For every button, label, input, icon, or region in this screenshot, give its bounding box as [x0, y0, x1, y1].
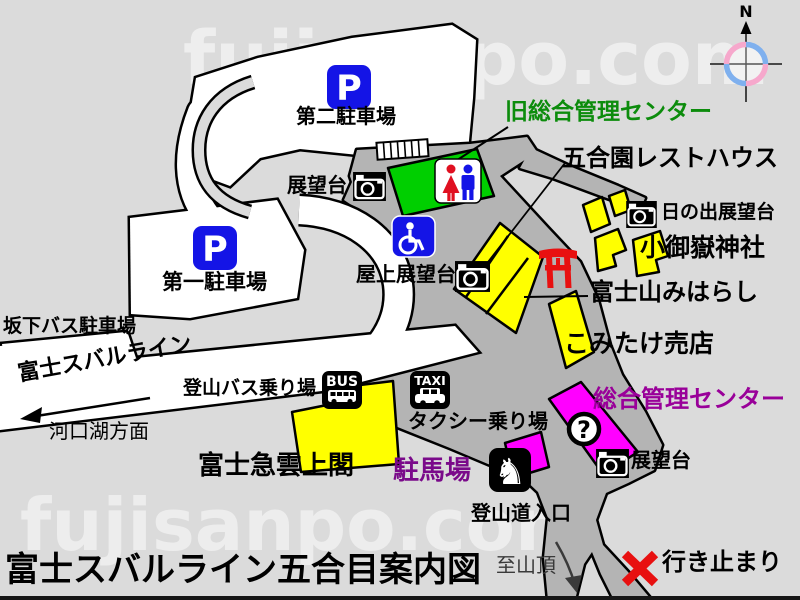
- label-taxi-stand: タクシー乗り場: [408, 412, 548, 433]
- camera-icon: [353, 172, 386, 201]
- label-hinode-viewpoint: 日の出展望台: [661, 203, 775, 223]
- info-icon-mark: ?: [577, 416, 591, 444]
- parking-icon: [193, 226, 237, 270]
- label-kawaguchiko-direction: 河口湖方面: [49, 422, 149, 443]
- taxi-icon-label: TAXI: [414, 373, 446, 388]
- page-title: 富士スバルライン五合目案内図: [5, 542, 481, 591]
- label-viewpoint-upper: 展望台: [287, 176, 347, 197]
- info-icon: ?: [569, 414, 599, 444]
- label-horse-parking: 駐馬場: [393, 457, 471, 484]
- label-management-center: 総合管理センター: [593, 387, 785, 412]
- label-trail-entrance: 登山道入口: [471, 504, 571, 525]
- camera-icon: [455, 261, 490, 292]
- label-to-summit: 至山頂: [496, 556, 556, 577]
- map-bottom-edge: [0, 596, 800, 600]
- map-canvas: P fujisanpo.com fujisanpo.com: [0, 0, 800, 600]
- horse-icon: ♞: [489, 448, 531, 493]
- parking-icon: [327, 65, 371, 109]
- restroom-icon: [435, 159, 481, 203]
- compass-north-label: N: [739, 2, 752, 21]
- label-dead-end: 行き止まり: [662, 550, 782, 575]
- label-climbing-bus-stop: 登山バス乗り場: [183, 379, 316, 399]
- label-komitake-shop: こみたけ売店: [564, 331, 714, 357]
- label-fujikyu-unjokaku: 富士急雲上閣: [198, 452, 354, 479]
- bus-icon: BUS: [322, 371, 362, 409]
- label-parking2: 第二駐車場: [296, 107, 396, 128]
- stairs: [376, 139, 428, 160]
- label-fujisan-miharashi: 富士山みはらし: [590, 280, 758, 305]
- label-old-management-center: 旧総合管理センター: [505, 99, 712, 123]
- label-viewpoint-lower: 展望台: [631, 451, 691, 472]
- label-parking1: 第一駐車場: [162, 272, 267, 294]
- label-komitake-shrine: 小御嶽神社: [640, 235, 765, 261]
- bus-icon-label: BUS: [326, 374, 358, 390]
- label-rooftop-viewpoint: 屋上展望台: [356, 265, 456, 286]
- taxi-icon: TAXI: [410, 371, 450, 409]
- camera-icon: [596, 449, 629, 478]
- horse-icon-glyph: ♞: [494, 452, 526, 493]
- camera-icon: [626, 201, 657, 228]
- wheelchair-icon: [392, 216, 435, 257]
- label-gogoen-rest-house: 五合園レストハウス: [562, 146, 778, 171]
- label-sakashita-bus-parking: 坂下バス駐車場: [3, 317, 136, 337]
